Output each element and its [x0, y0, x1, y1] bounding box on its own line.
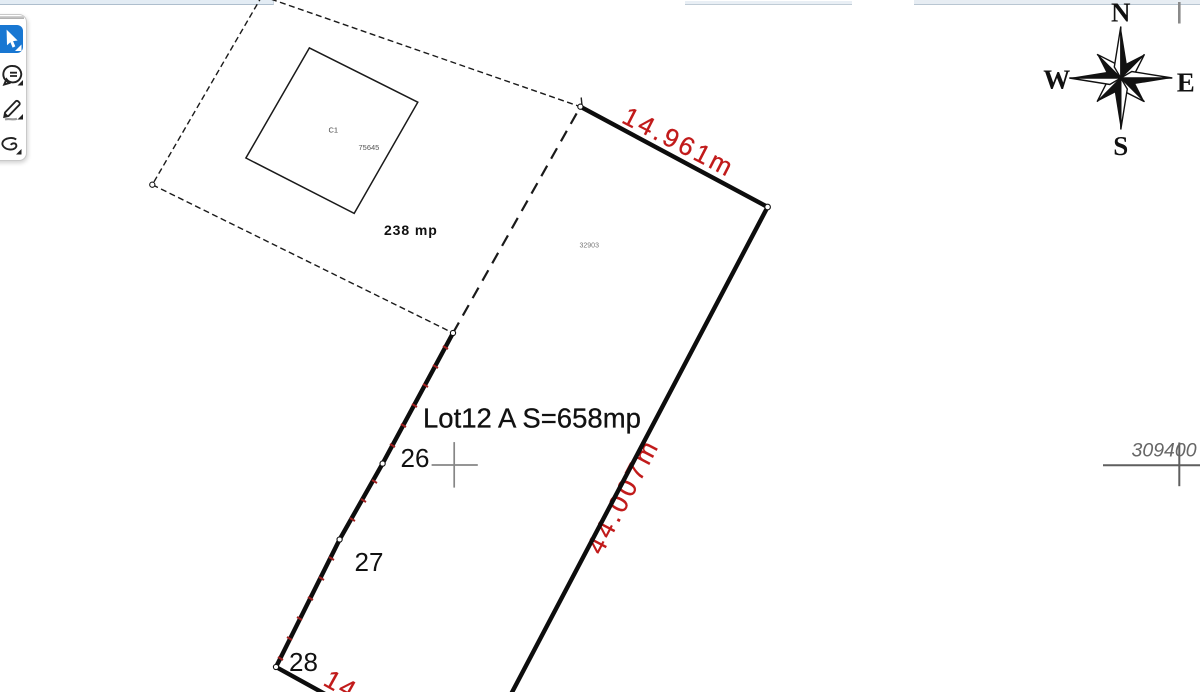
svg-text:E: E: [1177, 68, 1195, 98]
svg-text:Lot12 A S=658mp: Lot12 A S=658mp: [423, 403, 641, 434]
svg-text:28: 28: [289, 647, 318, 677]
svg-text:W: W: [1043, 65, 1070, 95]
svg-text:14.961m: 14.961m: [319, 664, 437, 692]
svg-text:309400: 309400: [1132, 440, 1197, 462]
svg-text:N: N: [1111, 0, 1131, 28]
svg-text:27: 27: [355, 547, 384, 577]
svg-text:32903: 32903: [580, 243, 600, 250]
svg-text:S: S: [1113, 131, 1128, 161]
svg-text:14.961m: 14.961m: [618, 101, 740, 184]
svg-text:238 mp: 238 mp: [384, 222, 438, 238]
svg-text:75645: 75645: [359, 143, 380, 152]
svg-text:C1: C1: [329, 126, 339, 135]
svg-text:26: 26: [401, 443, 430, 473]
